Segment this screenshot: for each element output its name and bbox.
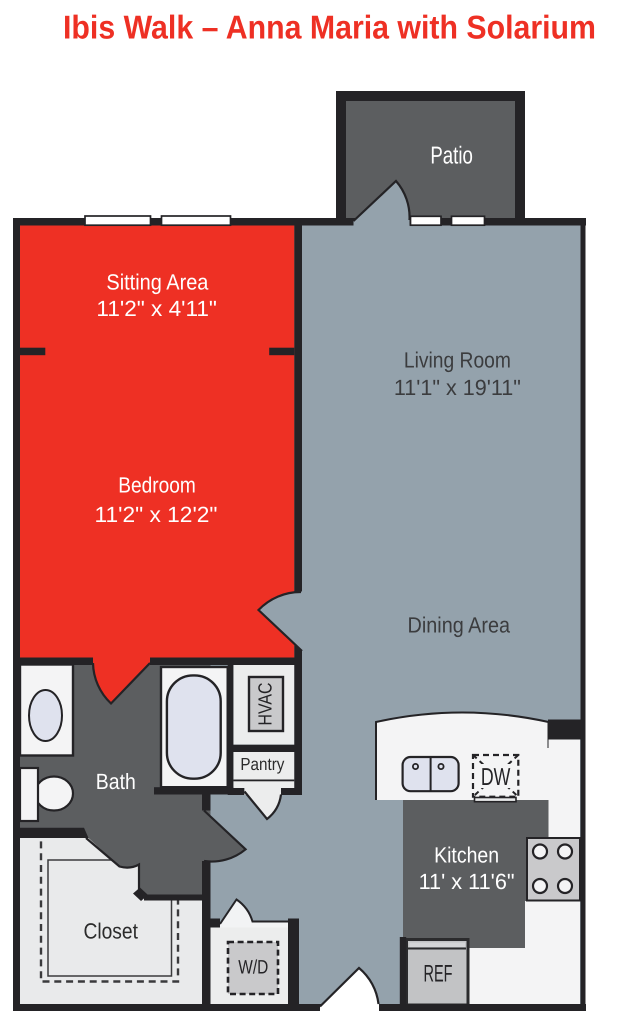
svg-text:Bedroom: Bedroom [118,472,196,497]
svg-text:Ibis Walk – Anna Maria with So: Ibis Walk – Anna Maria with Solarium [63,9,596,46]
svg-text:Dining Area: Dining Area [408,613,511,638]
svg-text:Kitchen: Kitchen [434,843,499,868]
svg-text:Patio: Patio [430,143,473,170]
svg-text:11'2" x 12'2": 11'2" x 12'2" [95,502,218,527]
svg-text:11'2" x 4'11": 11'2" x 4'11" [96,296,217,321]
svg-text:REF: REF [424,961,453,988]
svg-text:Bath: Bath [96,769,136,794]
svg-text:Living Room: Living Room [404,348,511,373]
svg-text:11' x 11'6": 11' x 11'6" [419,869,515,894]
svg-text:11'1" x 19'11": 11'1" x 19'11" [394,375,521,400]
svg-text:DW: DW [481,764,511,791]
svg-text:HVAC: HVAC [256,683,277,726]
svg-text:Closet: Closet [83,919,138,944]
svg-text:W/D: W/D [238,957,268,979]
svg-text:Sitting Area: Sitting Area [106,270,209,295]
svg-text:Pantry: Pantry [240,754,284,774]
